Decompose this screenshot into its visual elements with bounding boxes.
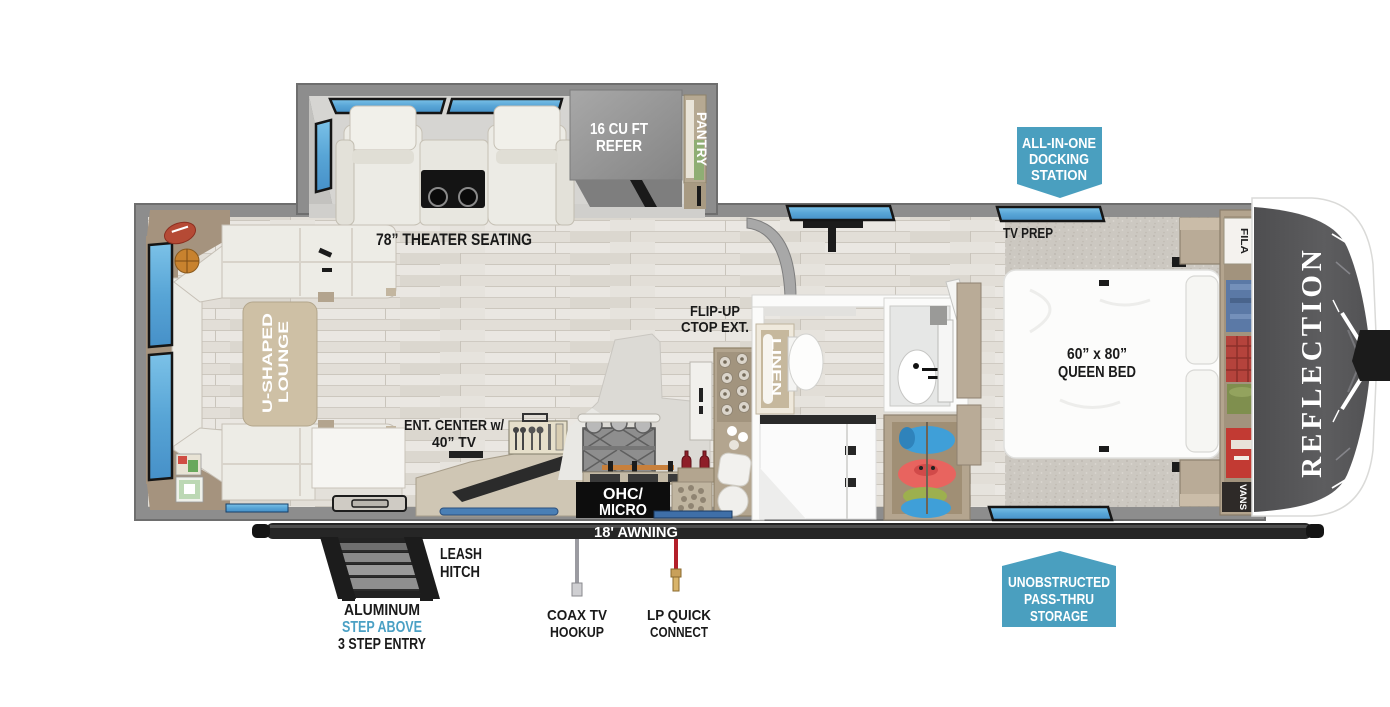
svg-text:PANTRY: PANTRY [694, 112, 709, 166]
svg-text:STORAGE: STORAGE [1030, 608, 1088, 625]
svg-text:REFER: REFER [596, 138, 642, 155]
svg-text:REFLECTION: REFLECTION [1296, 246, 1328, 478]
svg-text:60” x 80”: 60” x 80” [1067, 346, 1127, 363]
svg-text:LINEN: LINEN [769, 338, 784, 396]
svg-text:LP QUICK: LP QUICK [647, 607, 711, 624]
svg-text:ENT. CENTER w/: ENT. CENTER w/ [404, 417, 505, 434]
svg-text:HITCH: HITCH [440, 564, 480, 581]
svg-text:CTOP EXT.: CTOP EXT. [681, 319, 749, 336]
svg-text:40” TV: 40” TV [432, 434, 476, 451]
svg-text:U-SHAPED: U-SHAPED [259, 313, 275, 413]
svg-text:18' AWNING: 18' AWNING [594, 524, 678, 541]
svg-text:STEP ABOVE: STEP ABOVE [342, 619, 422, 636]
svg-text:STATION: STATION [1031, 168, 1087, 184]
svg-text:TV PREP: TV PREP [1003, 225, 1053, 242]
svg-text:16 CU FT: 16 CU FT [590, 121, 648, 138]
svg-text:MICRO: MICRO [599, 502, 647, 519]
svg-text:COAX TV: COAX TV [547, 607, 607, 624]
svg-text:ALUMINUM: ALUMINUM [344, 602, 420, 619]
svg-text:FILA: FILA [1238, 228, 1249, 254]
svg-text:OHC/: OHC/ [603, 486, 644, 503]
svg-text:QUEEN BED: QUEEN BED [1058, 364, 1136, 381]
svg-text:DOCKING: DOCKING [1029, 152, 1089, 168]
svg-text:3 STEP ENTRY: 3 STEP ENTRY [338, 636, 426, 653]
svg-text:HOOKUP: HOOKUP [550, 624, 604, 641]
svg-text:LEASH: LEASH [440, 546, 482, 563]
svg-text:PASS-THRU: PASS-THRU [1024, 591, 1094, 608]
svg-text:FLIP-UP: FLIP-UP [690, 303, 740, 320]
svg-text:ALL-IN-ONE: ALL-IN-ONE [1022, 136, 1096, 152]
svg-text:CONNECT: CONNECT [650, 624, 708, 641]
svg-text:LOUNGE: LOUNGE [275, 321, 291, 403]
svg-text:VANS: VANS [1238, 484, 1248, 510]
svg-text:78” THEATER SEATING: 78” THEATER SEATING [376, 230, 532, 249]
svg-text:UNOBSTRUCTED: UNOBSTRUCTED [1008, 574, 1110, 591]
